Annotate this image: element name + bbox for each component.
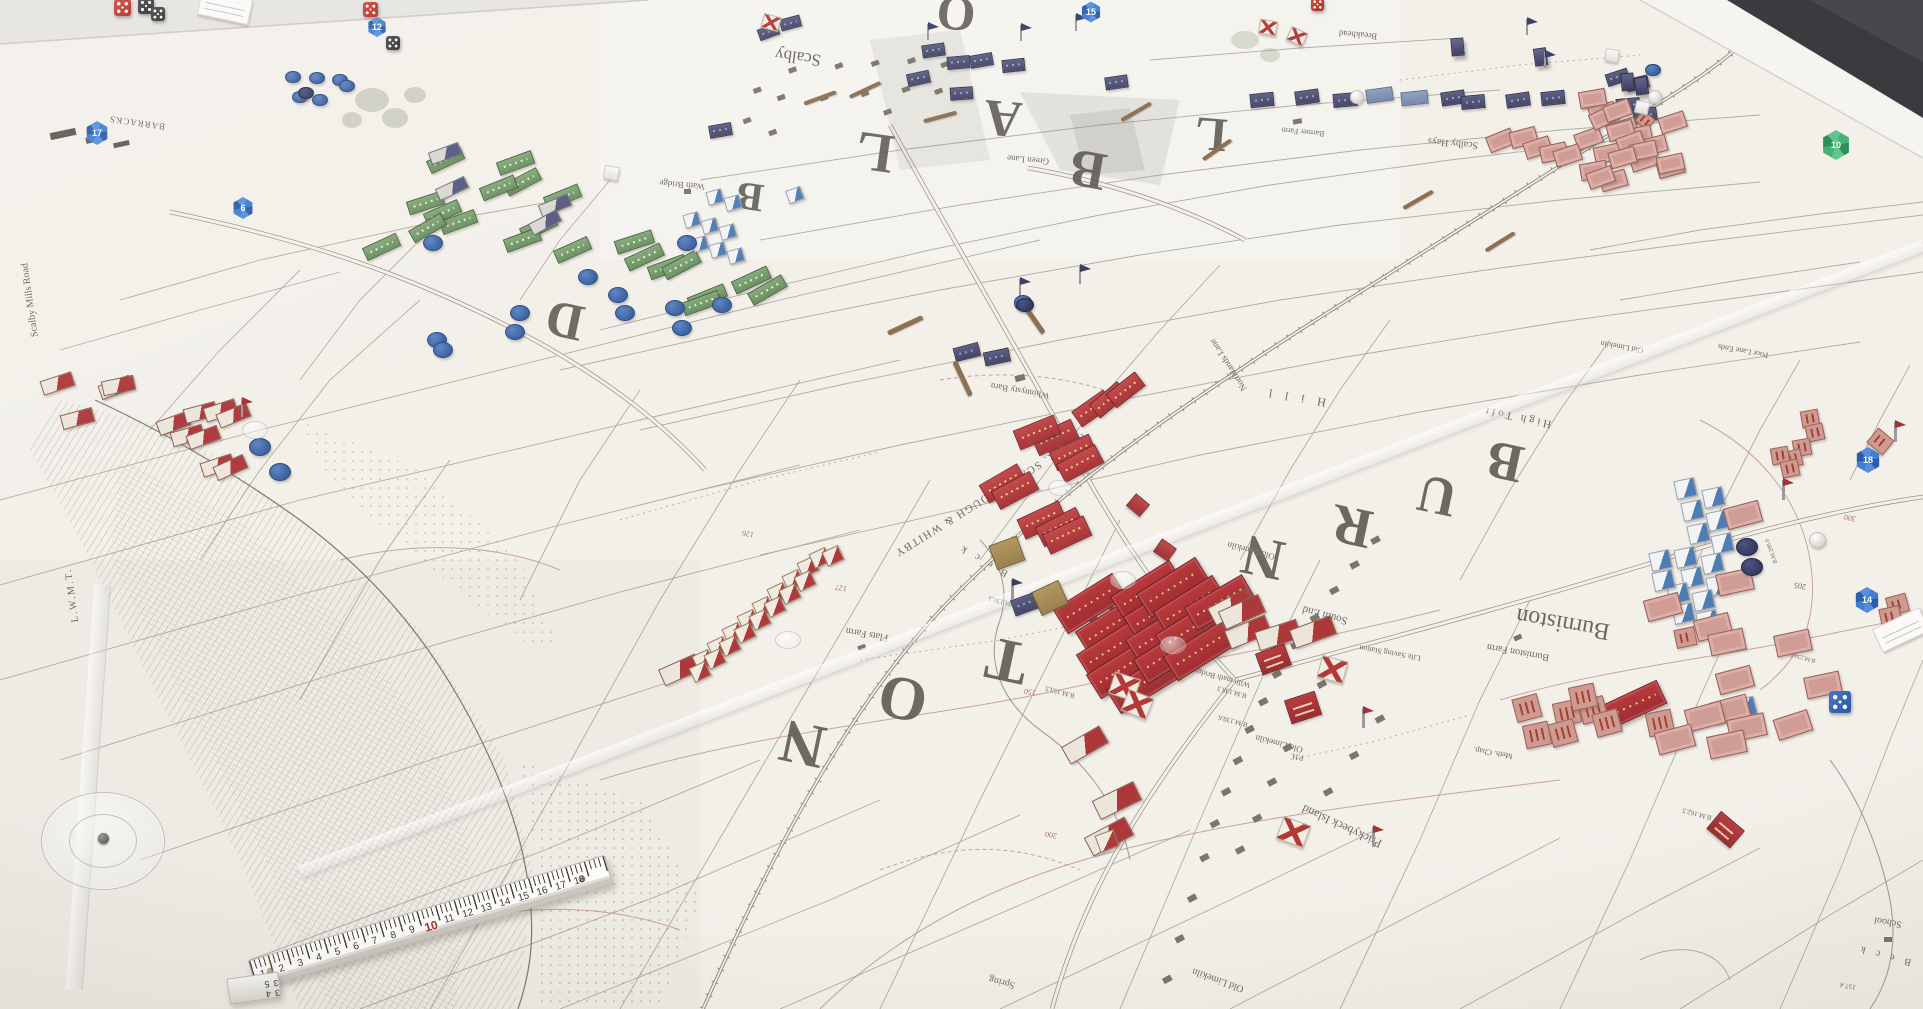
- die-d20blue: 15: [1081, 2, 1102, 23]
- die-d6dark: [151, 7, 165, 21]
- die-d20blue: 14: [1854, 587, 1880, 613]
- die-d6dark: [386, 36, 400, 50]
- die-d6red: [1311, 0, 1324, 11]
- die-d20blue: 18: [1855, 447, 1881, 473]
- die-d20blue: 12: [367, 17, 387, 37]
- die-d20blue: 17: [85, 121, 109, 145]
- die-d20green: 10: [1821, 130, 1851, 160]
- die-d6red: [114, 0, 131, 16]
- die-d6red: [363, 2, 378, 17]
- die-d6blue: [1829, 691, 1851, 713]
- die-d20blue: 6: [232, 197, 254, 219]
- dice-layer: 1217615101814: [0, 0, 1923, 1009]
- wargame-photo-scene: LABLODBTONSINRUBScalbyBurnistonBurniston…: [0, 0, 1923, 1009]
